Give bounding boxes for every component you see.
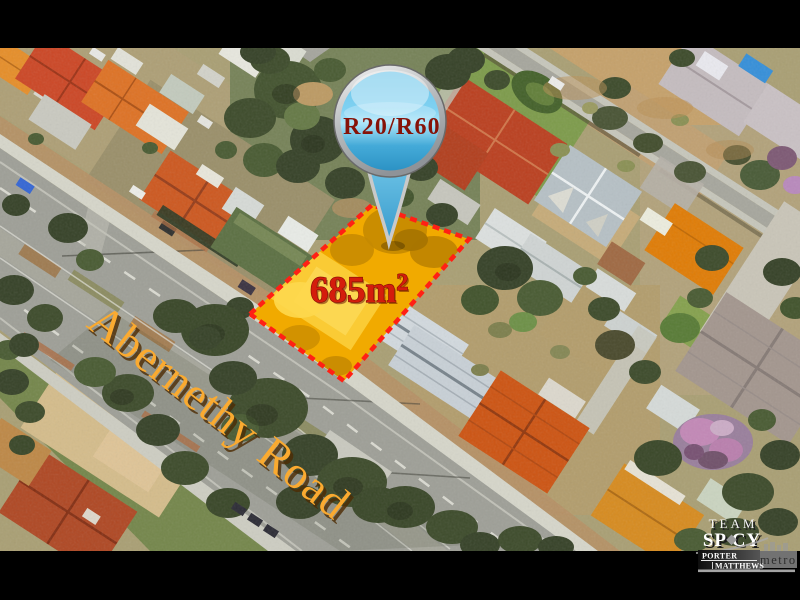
svg-text:MATTHEWS: MATTHEWS bbox=[715, 562, 764, 571]
svg-text:TEAM: TEAM bbox=[709, 516, 758, 531]
svg-text:PORTER: PORTER bbox=[702, 552, 737, 561]
svg-text:685m2: 685m2 bbox=[310, 270, 408, 311]
svg-text:R20/R60: R20/R60 bbox=[343, 114, 441, 140]
svg-text:metro: metro bbox=[760, 553, 797, 567]
